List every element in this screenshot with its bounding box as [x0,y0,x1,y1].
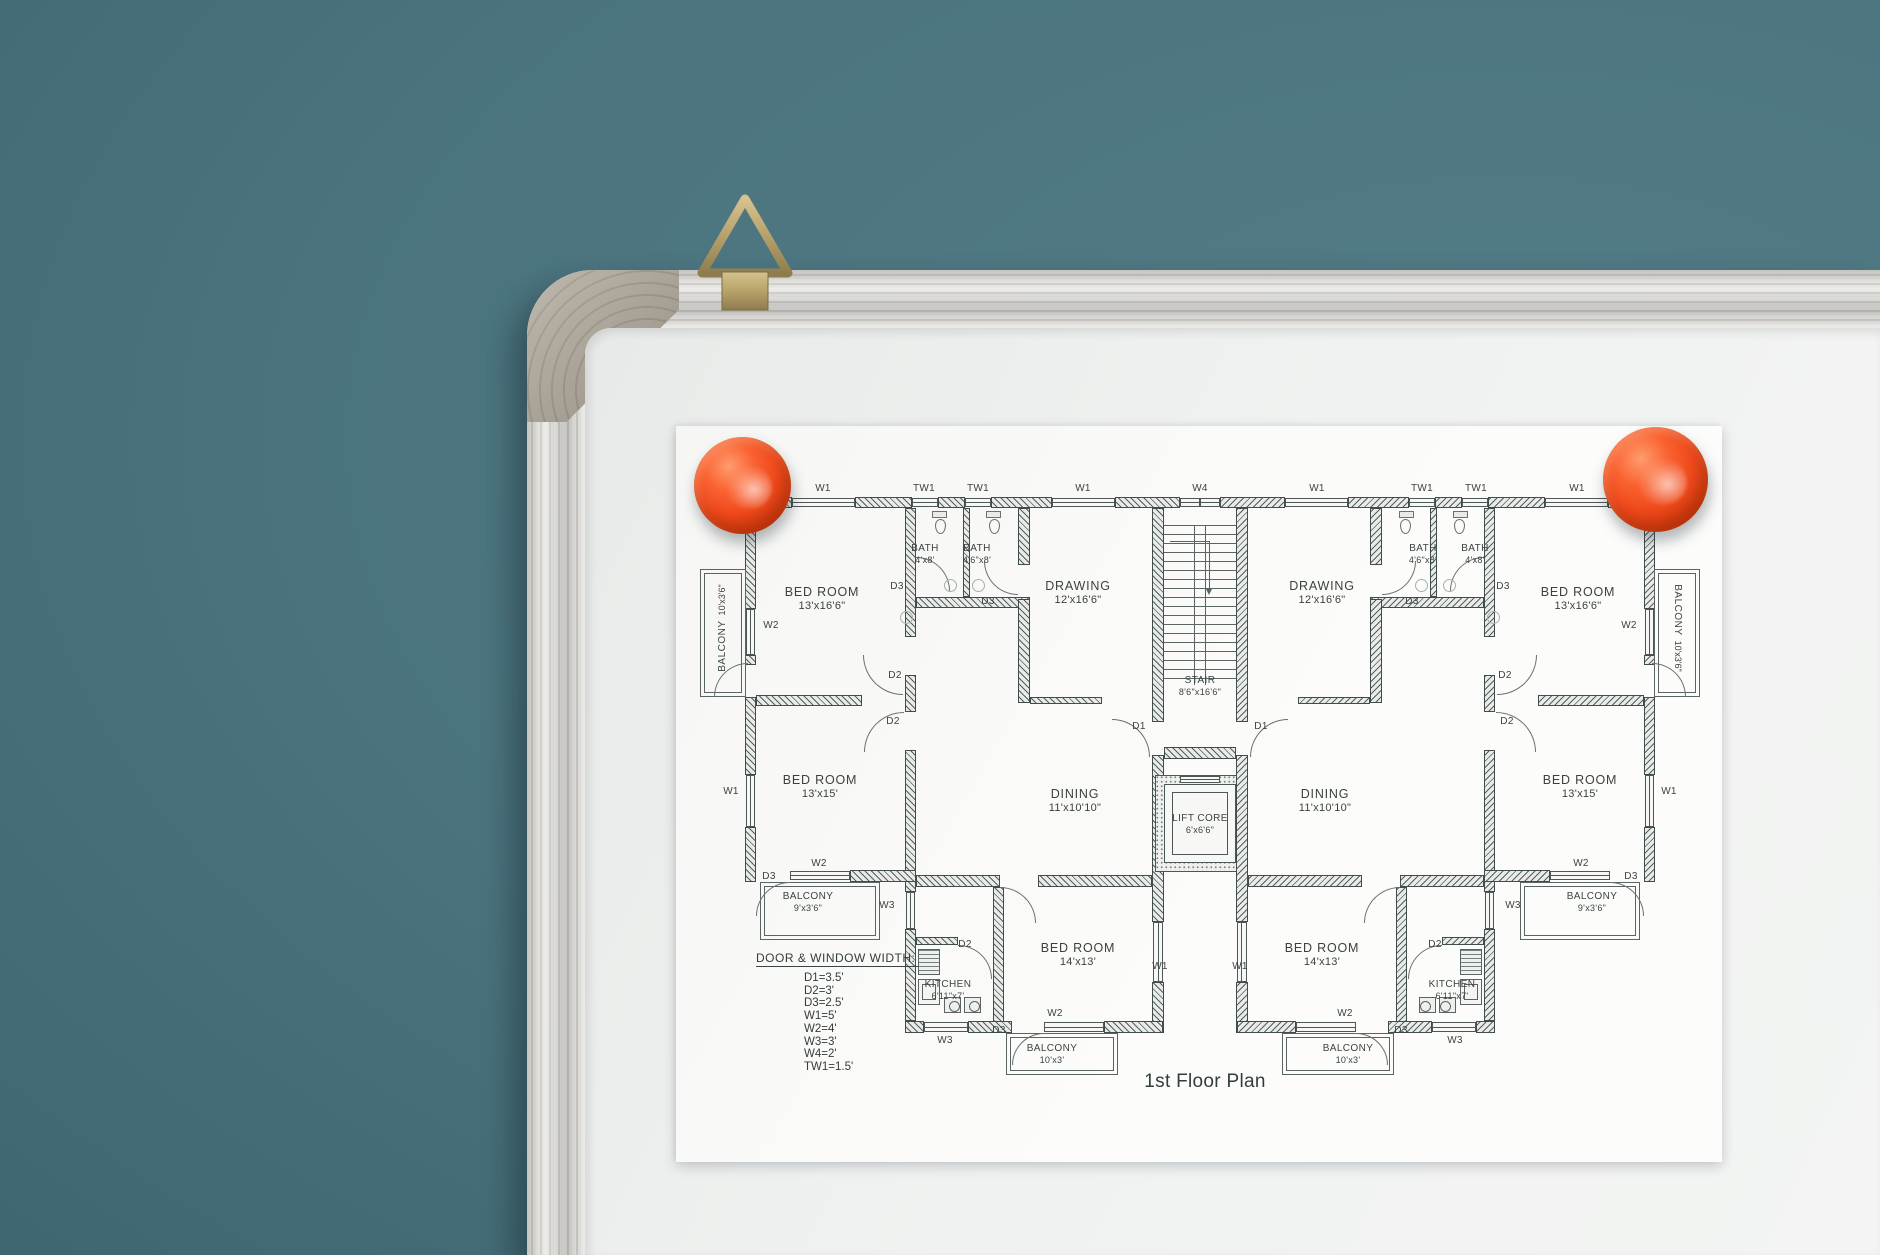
floor-plan-drawing: W1 TW1 TW1 W1 W2 W1 D3 D3 D2 D2 D1 W2 D3… [700,497,1700,1113]
toilet-icon [1453,511,1468,518]
wall-segment [1476,1021,1495,1033]
rd: 6'11"x7' [1436,991,1469,1001]
rd: 4'x8' [1465,555,1484,565]
rd: 10'x3' [1040,1055,1065,1065]
rn: BED ROOM [1543,773,1617,787]
window-tw1 [965,498,991,507]
toilet-icon [932,511,947,518]
window-w3 [1432,1022,1476,1032]
wall-segment [1442,937,1484,945]
rn: LIFT CORE [1172,813,1228,824]
toilet-icon [1399,511,1414,518]
window-w3 [1485,892,1494,929]
window-w2 [1645,609,1654,655]
tag-d1: D1 [1248,721,1274,732]
wall-segment [1538,695,1644,706]
wall-segment [1236,508,1248,722]
kitchen-cabinet-icon [1460,949,1482,975]
wall-segment [938,497,965,508]
window-w1 [1285,498,1348,507]
rn: KITCHEN [1429,979,1476,990]
room-label-bedroom-top: BED ROOM 13'x16'6" [1508,585,1648,612]
tag-w3: W3 [1440,1035,1470,1046]
window-w2 [1550,871,1610,880]
room-label-bedroom-small: BED ROOM 14'x13' [1252,941,1392,968]
rn: DRAWING [1045,579,1111,593]
tag-d3: D3 [986,1025,1012,1036]
door-arc [1000,887,1036,923]
tag-d3: D3 [1388,1025,1414,1036]
legend-item: W1=5' [804,1010,976,1023]
wall-segment [1348,497,1409,508]
legend-heading: DOOR & WINDOW WIDTH: [756,951,918,967]
wall-segment [1484,929,1495,1021]
room-label-dining: DINING 11'x10'10" [1255,787,1395,814]
wall-segment [1104,1021,1163,1033]
vd: 10'x3'6" [1673,641,1683,672]
wall-segment [1435,497,1462,508]
vn: BALCONY [1673,584,1684,635]
tag-w2: W2 [1616,620,1642,631]
tag-w3: W3 [1500,900,1526,911]
tag-w3: W3 [874,900,900,911]
rn: BALCONY [783,891,834,902]
room-label-lift: LIFT CORE 6'x6'6" [1148,813,1252,835]
wall-segment [1484,870,1550,882]
wall-segment [1237,1021,1296,1033]
vd: 10'x3'6" [717,584,727,615]
door-window-legend: DOOR & WINDOW WIDTH: D1=3.5' D2=3' D3=2.… [756,949,976,1074]
tag-w1: W1 [805,483,841,494]
basin-icon [900,611,913,624]
door-arc [1364,887,1400,923]
wall-segment [756,695,862,706]
room-label-balcony-mid: BALCONY 9'x3'6" [748,891,868,913]
tag-w1: W1 [718,786,744,797]
room-label-drawing: DRAWING 12'x16'6" [1008,579,1148,606]
tag-w2: W2 [1040,1008,1070,1019]
rn: BED ROOM [1041,941,1115,955]
tag-d3: D3 [976,596,1000,607]
legend-item: D1=3.5' [804,972,976,985]
wall-segment [1400,875,1484,887]
rd: 14'x13' [1304,956,1340,968]
rn: BATH [911,543,939,554]
rn: BATH [963,543,991,554]
rd: 4'x8' [915,555,934,565]
rd: 4'6"x8' [1409,555,1437,565]
window-w3 [906,892,915,929]
rd: 13'x16'6" [1555,600,1602,612]
rd: 12'x16'6" [1055,594,1102,606]
rd: 9'x3'6" [794,903,822,913]
tag-d2: D2 [1422,939,1448,950]
wall-segment [1370,508,1382,565]
room-label-bath-a: BATH 4'x8' [900,543,950,565]
room-label-bedroom-small: BED ROOM 14'x13' [1008,941,1148,968]
rn: BALCONY [1027,1043,1078,1054]
basin-icon [1487,611,1500,624]
rn: DINING [1301,787,1350,801]
window-w1 [1153,922,1163,982]
window-w1 [1052,498,1115,507]
rd: 13'x15' [802,788,838,800]
window-w4 [1200,498,1220,507]
tag-tw1: TW1 [906,483,942,494]
room-label-drawing: DRAWING 12'x16'6" [1252,579,1392,606]
rn: BED ROOM [783,773,857,787]
room-label-bath-a: BATH 4'x8' [1450,543,1500,565]
rn: BATH [1461,543,1489,554]
wall-segment [1018,508,1030,565]
window-w1 [1237,922,1247,982]
room-label-balcony-side: BALCONY 10'x3'6" [711,573,733,683]
tag-tw1: TW1 [1458,483,1494,494]
room-label-balcony-bottom: BALCONY 10'x3' [1298,1043,1398,1065]
tag-w2: W2 [1566,858,1596,869]
wall-segment [1298,697,1370,704]
tag-d2: D2 [880,716,906,727]
room-label-bedroom-top: BED ROOM 13'x16'6" [752,585,892,612]
wall-segment [850,870,916,882]
legend-item: D3=2.5' [804,997,976,1010]
wall-segment [1370,599,1382,703]
rn: DINING [1051,787,1100,801]
tag-d1: D1 [1126,721,1152,732]
rn: BED ROOM [1541,585,1615,599]
room-label-bedroom-mid: BED ROOM 13'x15' [750,773,890,800]
rd: 13'x15' [1562,788,1598,800]
basin-icon [1443,579,1456,592]
magnet-top-left [694,437,791,534]
rd: 13'x16'6" [799,600,846,612]
toilet-icon [986,511,1001,518]
wall-segment [855,497,912,508]
tag-d2: D2 [882,670,908,681]
rn: BALCONY [1323,1043,1374,1054]
rd: 12'x16'6" [1299,594,1346,606]
wall-segment [1248,875,1362,887]
tag-w2: W2 [758,620,784,631]
rect [722,272,768,310]
wall-segment [1038,875,1152,887]
room-label-dining: DINING 11'x10'10" [1005,787,1145,814]
legend-item: W4=2' [804,1048,976,1061]
legend-item: W2=4' [804,1023,976,1036]
tag-w2: W2 [804,858,834,869]
tag-d2: D2 [1492,670,1518,681]
wall-segment [991,497,1052,508]
magnet-top-right [1603,427,1708,532]
tag-w4: W4 [1182,483,1218,494]
rd: 14'x13' [1060,956,1096,968]
room-label-bath-b: BATH 4'6"x8' [952,543,1002,565]
wall-segment [1030,697,1102,704]
window-w1 [1545,498,1608,507]
room-label-balcony-side: BALCONY 10'x3'6" [1667,573,1689,683]
room-label-bath-b: BATH 4'6"x8' [1398,543,1448,565]
rn: BED ROOM [785,585,859,599]
window-w2 [746,609,755,655]
wall-segment [745,697,756,775]
tag-tw1: TW1 [1404,483,1440,494]
rn: DRAWING [1289,579,1355,593]
tag-w1: W1 [1656,786,1682,797]
rd: 6'x6'6" [1186,825,1214,835]
wall-segment [1220,497,1285,508]
vn: BALCONY [717,620,728,671]
basin-icon [1415,579,1428,592]
rn: BALCONY [1567,891,1618,902]
rn: BED ROOM [1285,941,1359,955]
legend-item: W3=3' [804,1036,976,1049]
wall-segment [1644,697,1655,775]
tag-w1: W1 [1299,483,1335,494]
tag-w1: W1 [1146,961,1174,972]
tag-d2: D2 [1494,716,1520,727]
room-label-balcony-bottom: BALCONY 10'x3' [1002,1043,1102,1065]
room-label-balcony-mid: BALCONY 9'x3'6" [1532,891,1652,913]
apartment-unit-mirrored: W1 TW1 TW1 W1 W2 W1 D3 D3 D2 D2 D1 W2 D3… [1200,497,1700,1113]
tag-tw1: TW1 [960,483,996,494]
rd: 11'x10'10" [1299,802,1352,814]
tag-d3: D3 [1400,596,1424,607]
wall-segment [916,875,1000,887]
legend-item: D2=3' [804,985,976,998]
window-w2 [1296,1022,1356,1032]
rd: 10'x3' [1336,1055,1361,1065]
wall-segment [1644,827,1655,882]
wall-segment [1236,755,1248,922]
tag-d3: D3 [756,871,782,882]
room-label-kitchen: KITCHEN 6'11"x7' [1418,979,1486,1001]
basin-icon [972,579,985,592]
tag-w1: W1 [1226,961,1254,972]
window-w1 [792,498,855,507]
wall-segment [1115,497,1180,508]
wall-segment [1018,599,1030,703]
door-arc [1408,945,1442,979]
floor-plan-sheet: W1 TW1 TW1 W1 W2 W1 D3 D3 D2 D2 D1 W2 D3… [676,426,1722,1162]
tag-d3: D3 [1618,871,1644,882]
window-tw1 [1409,498,1435,507]
wall-segment [745,827,756,882]
legend-item: TW1=1.5' [804,1061,976,1074]
room-label-bedroom-mid: BED ROOM 13'x15' [1510,773,1650,800]
path [702,199,788,273]
rd: 4'6"x8' [963,555,991,565]
window-w4 [1180,498,1200,507]
rd: 9'x3'6" [1578,903,1606,913]
rn: BATH [1409,543,1437,554]
window-w2 [1044,1022,1104,1032]
window-tw1 [912,498,938,507]
hanging-hook-icon [692,192,798,318]
tag-w2: W2 [1330,1008,1360,1019]
tag-w1: W1 [1559,483,1595,494]
photo-scene: { "scene": { "wall_color": "#4a737e", "w… [0,0,1880,1255]
window-w2 [790,871,850,880]
tag-w1: W1 [1065,483,1101,494]
rd: 11'x10'10" [1049,802,1102,814]
basin-icon [944,579,957,592]
wall-segment [1488,497,1545,508]
window-tw1 [1462,498,1488,507]
